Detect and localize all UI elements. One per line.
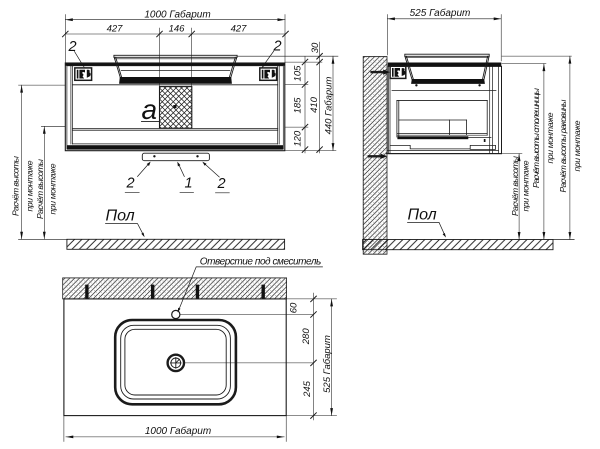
svg-text:2: 2 — [273, 39, 282, 55]
svg-text:410: 410 — [309, 96, 320, 113]
svg-text:1000 Габарит: 1000 Габарит — [144, 8, 210, 20]
svg-text:Расчёт высоты: Расчёт высоты — [35, 158, 45, 219]
svg-text:при монтаже: при монтаже — [24, 160, 34, 211]
svg-text:525 Габарит: 525 Габарит — [410, 7, 471, 19]
svg-text:427: 427 — [107, 24, 124, 35]
svg-text:440 Габарит: 440 Габарит — [324, 77, 335, 135]
svg-text:525 Габарит: 525 Габарит — [322, 335, 333, 393]
svg-text:185: 185 — [292, 97, 303, 114]
svg-text:427: 427 — [231, 24, 248, 35]
svg-text:Пол: Пол — [408, 207, 437, 224]
svg-text:2: 2 — [217, 176, 226, 192]
svg-text:при монтаже: при монтаже — [521, 160, 531, 211]
svg-text:Отверстие под смеситель: Отверстие под смеситель — [200, 257, 321, 268]
svg-text:1000 Габарит: 1000 Габарит — [145, 425, 211, 437]
svg-text:Пол: Пол — [106, 208, 135, 225]
svg-text:при монтаже: при монтаже — [572, 120, 582, 171]
svg-text:105: 105 — [292, 65, 303, 82]
svg-text:при монтаже: при монтаже — [545, 112, 555, 163]
svg-text:Расчёт высоты: Расчёт высоты — [510, 155, 520, 216]
svg-text:245: 245 — [302, 380, 313, 398]
svg-text:1: 1 — [185, 175, 193, 191]
svg-text:Расчёт высоты столешницы: Расчёт высоты столешницы — [531, 87, 541, 188]
svg-text:146: 146 — [169, 24, 186, 35]
svg-text:120: 120 — [292, 130, 303, 147]
svg-text:30: 30 — [310, 42, 321, 53]
svg-text:280: 280 — [301, 328, 312, 346]
svg-text:при монтаже: при монтаже — [48, 163, 58, 214]
svg-text:60: 60 — [289, 302, 300, 313]
svg-text:2: 2 — [126, 175, 135, 191]
svg-text:a: a — [142, 94, 158, 125]
svg-text:Расчёт высоты раковины: Расчёт высоты раковины — [558, 99, 568, 193]
svg-text:Расчёт высоты: Расчёт высоты — [10, 155, 20, 216]
